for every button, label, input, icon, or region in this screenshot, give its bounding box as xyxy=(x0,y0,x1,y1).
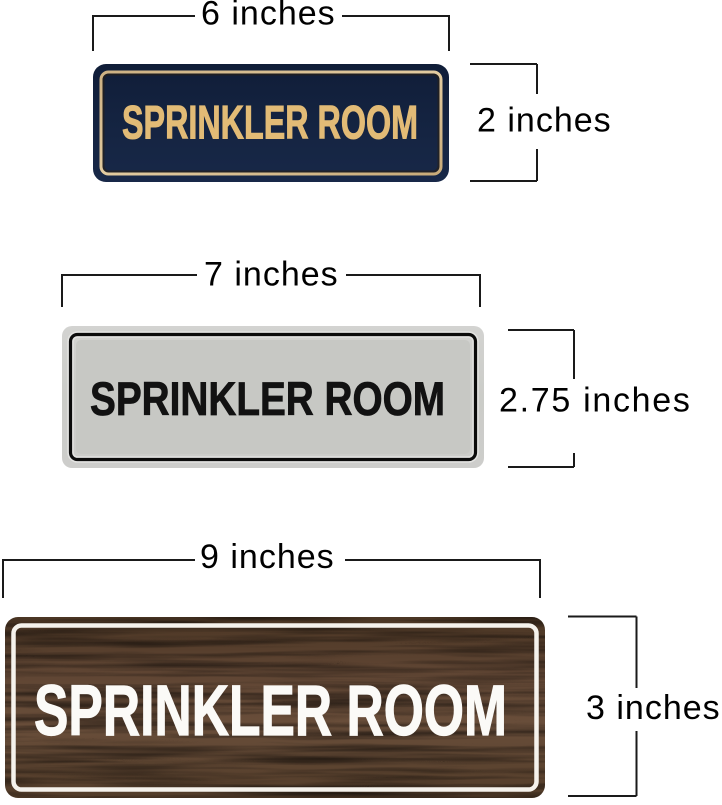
svg-text:2.75 inches: 2.75 inches xyxy=(499,382,692,420)
svg-text:3 inches: 3 inches xyxy=(586,689,721,727)
svg-text:SPRINKLER ROOM: SPRINKLER ROOM xyxy=(90,373,445,426)
svg-text:SPRINKLER ROOM: SPRINKLER ROOM xyxy=(122,97,418,150)
svg-text:6 inches: 6 inches xyxy=(201,0,336,33)
svg-text:9 inches: 9 inches xyxy=(200,538,335,576)
svg-text:2 inches: 2 inches xyxy=(477,102,612,140)
svg-text:SPRINKLER ROOM: SPRINKLER ROOM xyxy=(34,672,507,751)
svg-text:7 inches: 7 inches xyxy=(204,256,339,294)
